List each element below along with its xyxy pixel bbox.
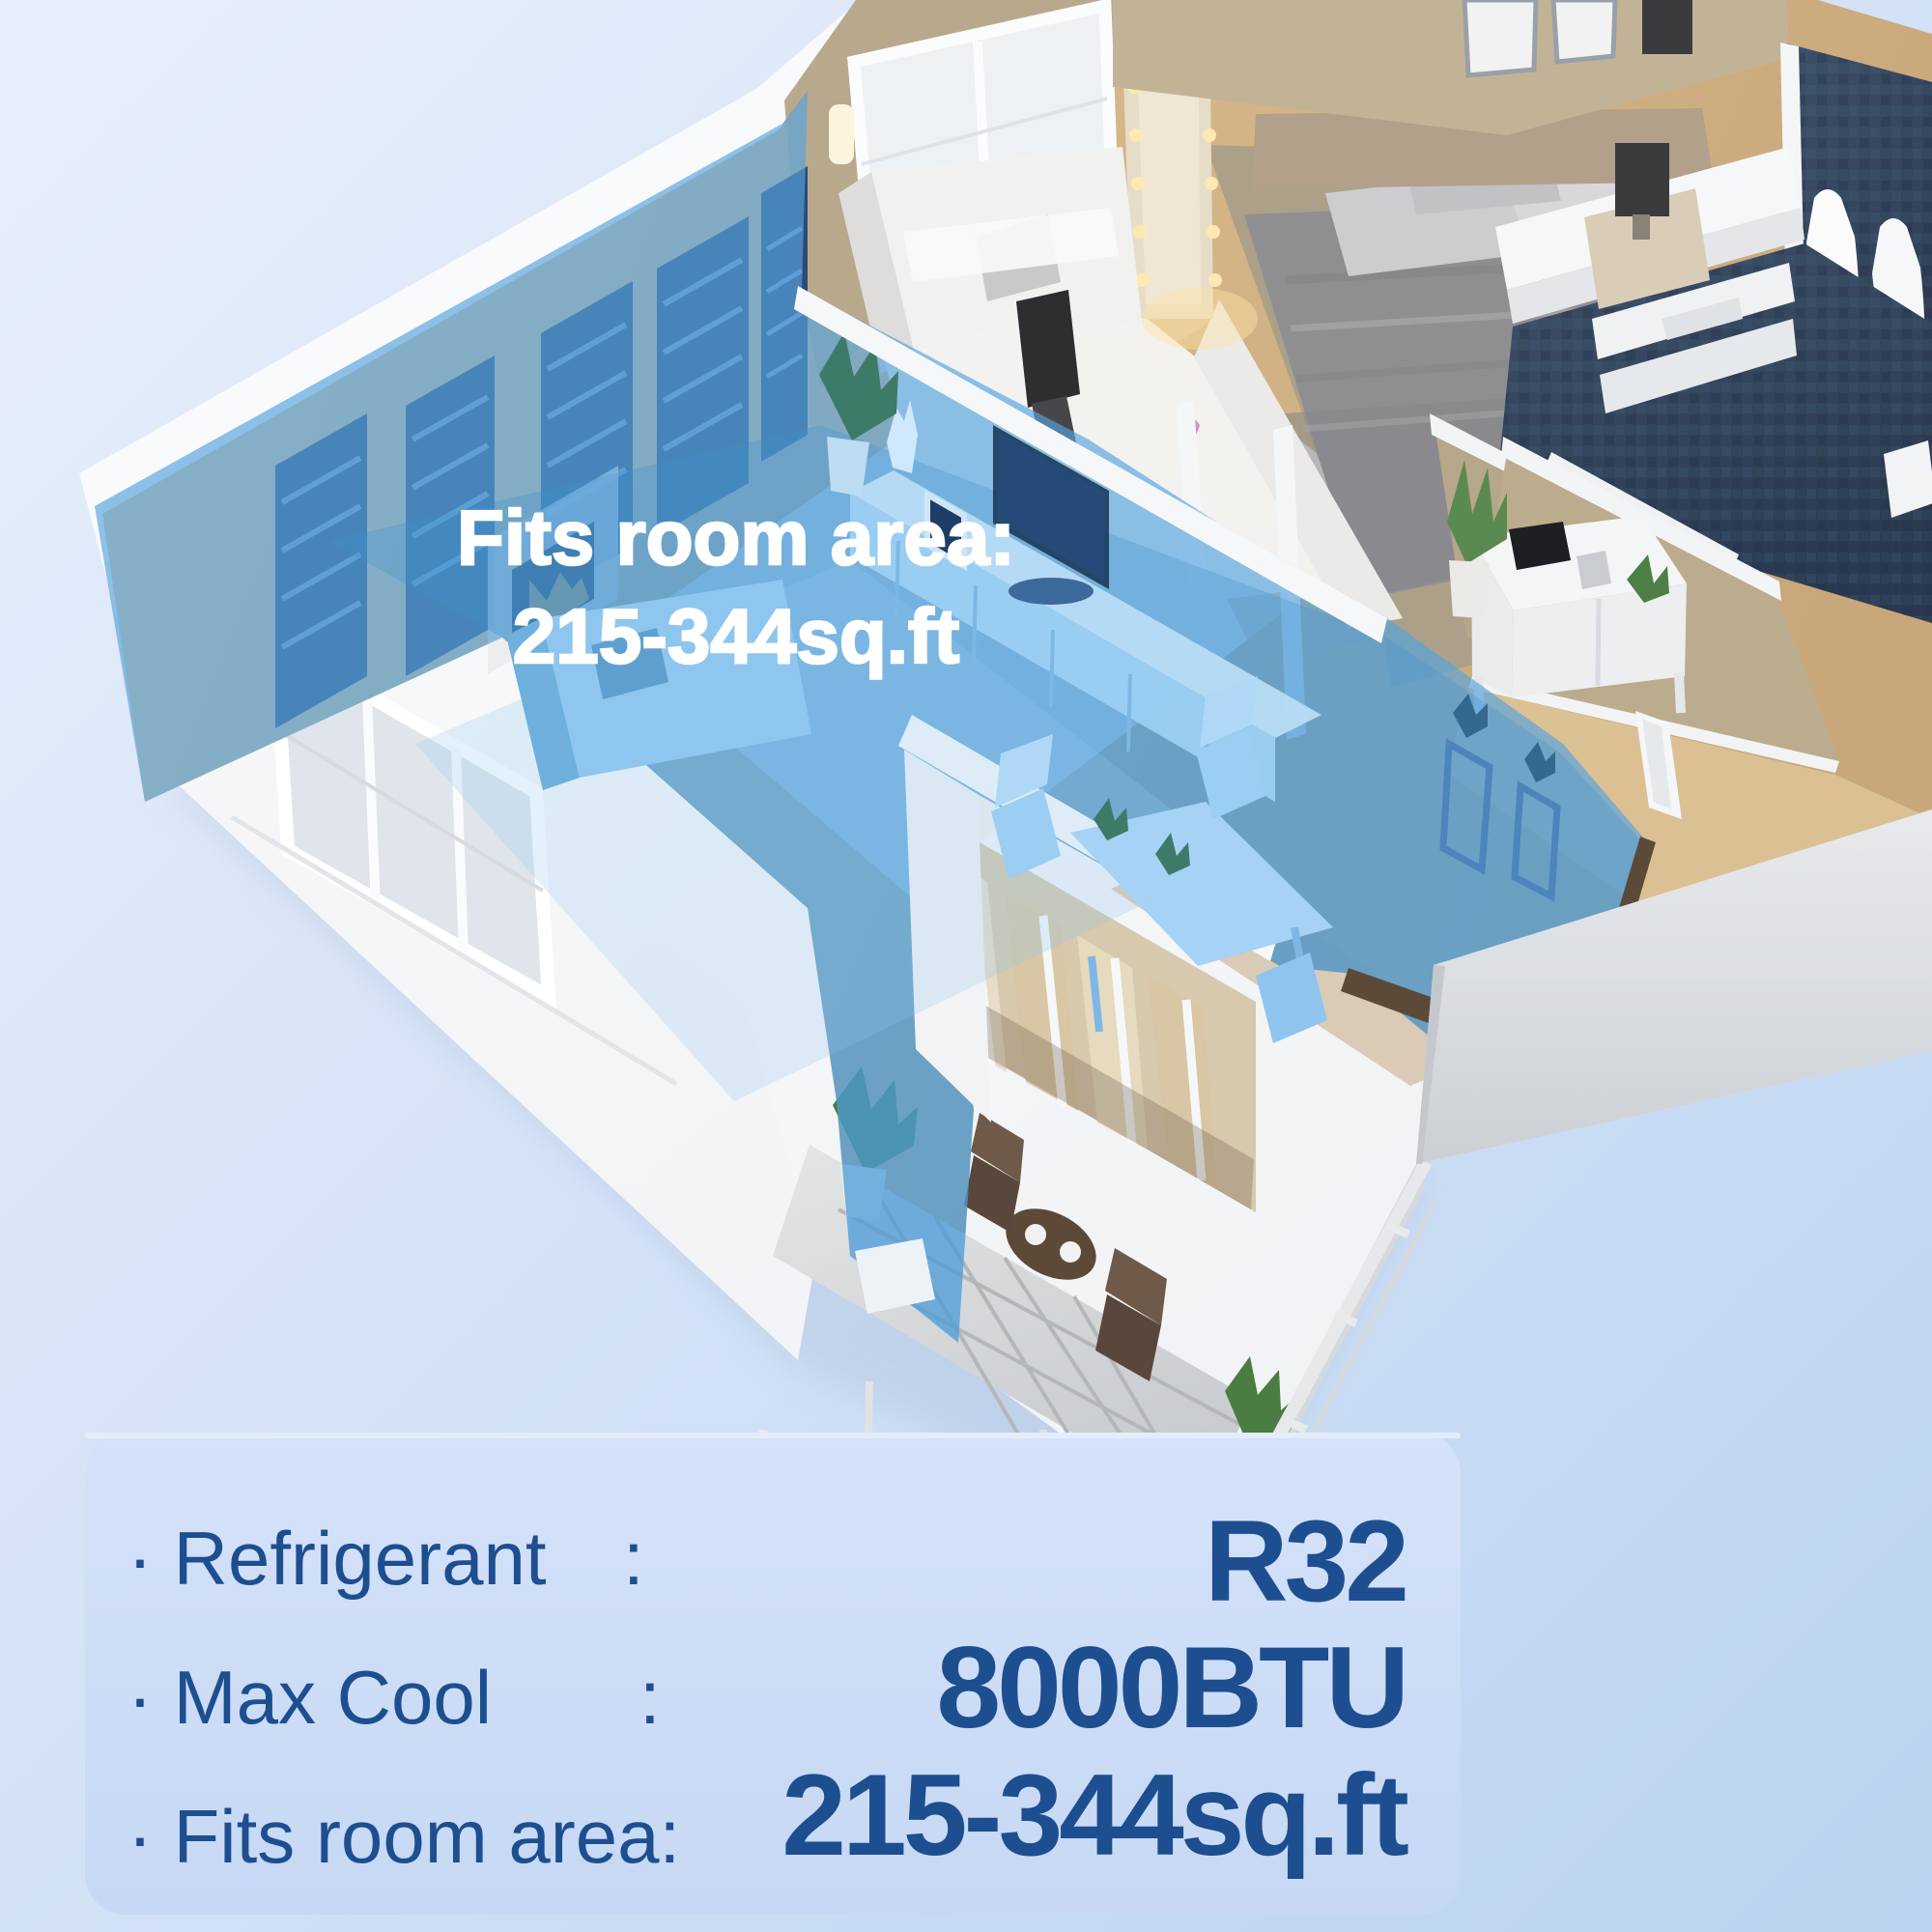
svg-text:· Max Cool: · Max Cool: [128, 1655, 492, 1740]
svg-text:215-344sq.ft: 215-344sq.ft: [781, 1750, 1408, 1880]
svg-text:Fits room area:: Fits room area:: [457, 495, 1015, 581]
svg-text:215-344sq.ft: 215-344sq.ft: [513, 593, 959, 679]
svg-text:8000BTU: 8000BTU: [936, 1623, 1406, 1752]
svg-text::: :: [623, 1516, 644, 1601]
svg-text:· Refrigerant: · Refrigerant: [128, 1516, 547, 1601]
svg-text::: :: [639, 1655, 661, 1740]
svg-text:R32: R32: [1205, 1496, 1406, 1626]
svg-text:· Fits room area:: · Fits room area:: [128, 1794, 680, 1879]
